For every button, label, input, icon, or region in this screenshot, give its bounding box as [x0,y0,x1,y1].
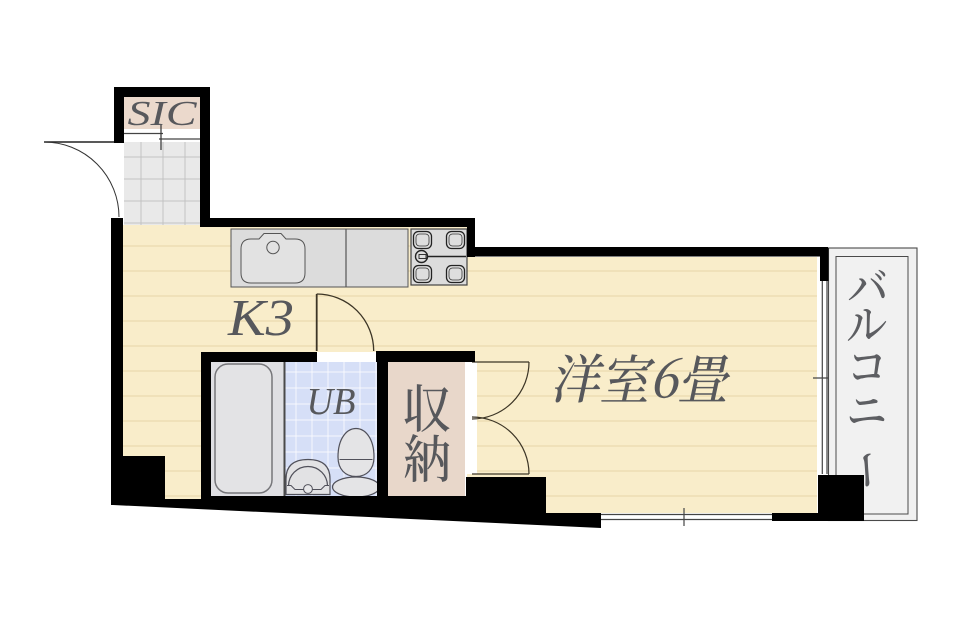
svg-text:K3: K3 [227,290,294,347]
svg-text:SIC: SIC [128,94,198,133]
svg-text:UB: UB [307,381,356,423]
